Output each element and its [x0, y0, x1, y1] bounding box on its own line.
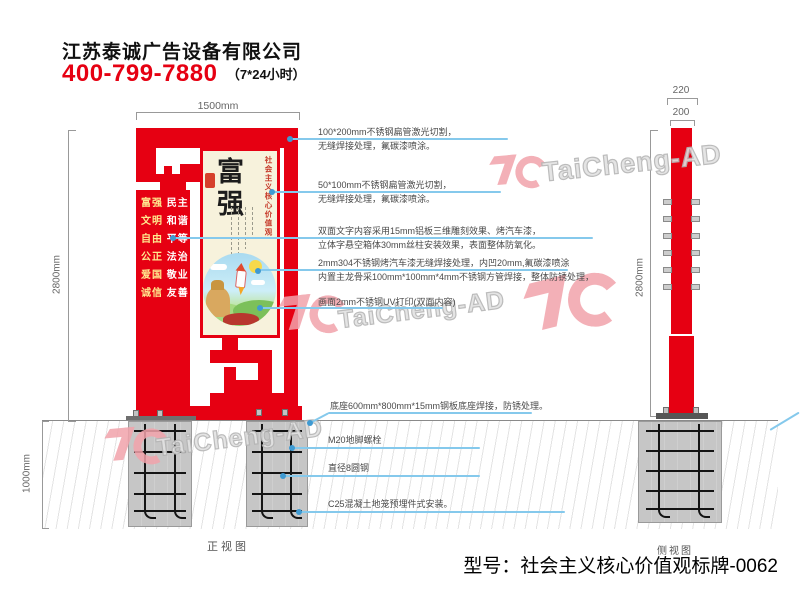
side-dim-inner-label: 200: [666, 107, 696, 118]
value-row: 爱国 敬业: [141, 266, 191, 281]
landmark-top: [211, 280, 224, 290]
model-number: 型号：社会主义核心价值观标牌-0062: [430, 551, 778, 578]
leader-dot: [280, 473, 286, 479]
taicheng-logo-icon: [281, 288, 337, 333]
side-dim-inner-bracket: [670, 120, 695, 126]
rebar-cage: [646, 424, 714, 516]
sign-meander-br-right: [258, 363, 272, 393]
annotation: 画面2mm不锈钢UV打印(双面内容): [318, 297, 456, 308]
side-dim-outer-label: 220: [666, 85, 696, 96]
side-clamp: [663, 233, 672, 239]
value-row: 富强 民主: [141, 194, 191, 209]
leader-line: [292, 447, 480, 449]
sign-top-bar: [136, 128, 298, 148]
side-clamp: [663, 199, 672, 205]
poster-paragraph-line: [252, 207, 253, 237]
leader-line: [328, 412, 532, 414]
poster-panel: 富强 社会主义核心价值观: [200, 148, 280, 338]
rocket-flame: [238, 287, 245, 296]
side-dim-height-label: 2800mm: [635, 240, 646, 316]
front-view-label: 正视图: [207, 538, 249, 554]
leader-dot: [170, 235, 176, 241]
technical-drawing-page: 江苏泰诚广告设备有限公司 400-799-7880 （7*24小时） TaiCh…: [0, 0, 800, 600]
value-row: 公正 法治: [141, 248, 191, 263]
side-clamp: [691, 199, 700, 205]
leader-dot: [255, 268, 261, 274]
value-row: 诚信 友善: [141, 284, 191, 299]
rocket-nose: [236, 262, 247, 271]
dim-width-label: 1500mm: [180, 100, 256, 112]
annotation: 2mm304不锈钢烤汽车漆无缝焊接处理，内凹20mm,氟碳漆喷涂 内置主龙骨采1…: [318, 258, 594, 283]
annotation: M20地脚螺栓: [328, 435, 382, 446]
leader-dot: [289, 445, 295, 451]
leader-dot: [269, 189, 275, 195]
annotation: 直径8圆钢: [328, 463, 369, 474]
sign-right-column: [284, 148, 298, 406]
leader-dot: [307, 420, 313, 426]
annotation: 双面文字内容采用15mm铝板三维雕刻效果、烤汽车漆， 立体字悬空箱体30mm丝柱…: [318, 226, 541, 251]
annotation: C25混凝土地笼预埋件式安装。: [328, 499, 453, 510]
dim-height-line: [68, 130, 76, 422]
watermark-text: TaiCheng-AD: [337, 286, 507, 335]
sign-meander-br-inner: [224, 380, 258, 393]
dim-width-bracket: [136, 112, 300, 120]
value-row: 文明 和谐: [141, 212, 191, 227]
annotation: 50*100mm不锈钢扁管激光切割， 无缝焊接处理，氟碳漆喷涂。: [318, 180, 452, 205]
anchor-bolt: [256, 409, 262, 416]
sign-meander-tl-spiral: [164, 166, 172, 174]
side-base-plate: [656, 413, 708, 419]
dim-underground-label: 1000mm: [22, 436, 33, 512]
side-column-lower: [669, 335, 694, 416]
sign-meander-br-top: [210, 350, 272, 363]
side-clamp: [691, 250, 700, 256]
poster-paragraph-line: [231, 207, 232, 259]
landmark-shape: [206, 287, 230, 317]
leader-line: [299, 511, 565, 513]
side-clamp: [691, 216, 700, 222]
side-clamp: [691, 284, 700, 290]
anchor-bolt: [157, 410, 163, 417]
service-hours: （7*24小时）: [227, 67, 306, 82]
sign-meander-br-center: [224, 367, 236, 380]
poster-illustration: [203, 253, 276, 326]
anchor-bolt: [133, 410, 139, 417]
leader-dot: [296, 509, 302, 515]
poster-seal: [205, 173, 215, 188]
annotation: 100*200mm不锈钢扁管激光切割， 无缝焊接处理，氟碳漆喷涂。: [318, 127, 457, 152]
poster-side-text: 社会主义核心价值观: [263, 156, 274, 237]
cloud-icon: [210, 264, 227, 270]
watermark-text: TaiCheng-AD: [541, 139, 723, 189]
cloud-icon: [251, 280, 265, 285]
side-clamp: [663, 284, 672, 290]
annotation: 底座600mm*800mm*15mm钢板底座焊接，防锈处理。: [330, 401, 548, 412]
taicheng-logo-icon: [106, 422, 159, 464]
poster-paragraph-line: [245, 207, 246, 249]
red-roof-shape: [223, 313, 259, 325]
sign-meander-br-bottom: [210, 393, 298, 406]
leader-line: [283, 475, 480, 477]
phone-number: 400-799-7880: [62, 60, 217, 87]
taicheng-logo-icon: [491, 150, 539, 188]
leader-dot: [287, 136, 293, 142]
side-clamp: [691, 233, 700, 239]
dim-height-label: 2800mm: [52, 237, 63, 313]
anchor-bolt: [282, 409, 288, 416]
side-clamp: [663, 267, 672, 273]
side-clamp: [663, 250, 672, 256]
leader-dot: [257, 305, 263, 311]
phone-row: 400-799-7880 （7*24小时）: [62, 60, 306, 88]
poster-paragraph-line: [238, 207, 239, 259]
side-dim-outer-bracket: [667, 98, 698, 105]
side-clamp: [691, 267, 700, 273]
side-clamp: [663, 216, 672, 222]
dim-underground-line: [42, 421, 49, 529]
